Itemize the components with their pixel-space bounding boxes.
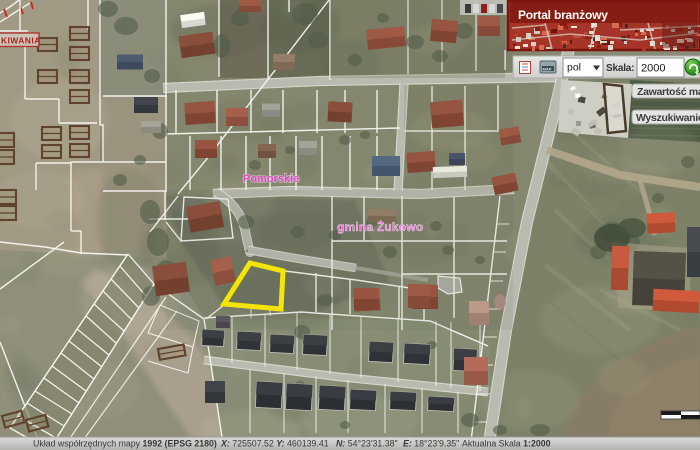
svg-text:MAP: MAP <box>543 67 552 72</box>
svg-text:Portal branżowy: Portal branżowy <box>518 8 608 22</box>
svg-text:Układ współrzędnych mapy 1992: Układ współrzędnych mapy 1992 (EPSG 2180… <box>33 439 551 449</box>
svg-text:Wyszukiwanie: Wyszukiwanie <box>636 112 700 124</box>
svg-text:pol: pol <box>567 62 581 74</box>
svg-text:Skala:: Skala: <box>606 63 634 74</box>
svg-text:Zawartość mapy: Zawartość mapy <box>637 86 700 98</box>
svg-text:2000: 2000 <box>641 63 665 75</box>
